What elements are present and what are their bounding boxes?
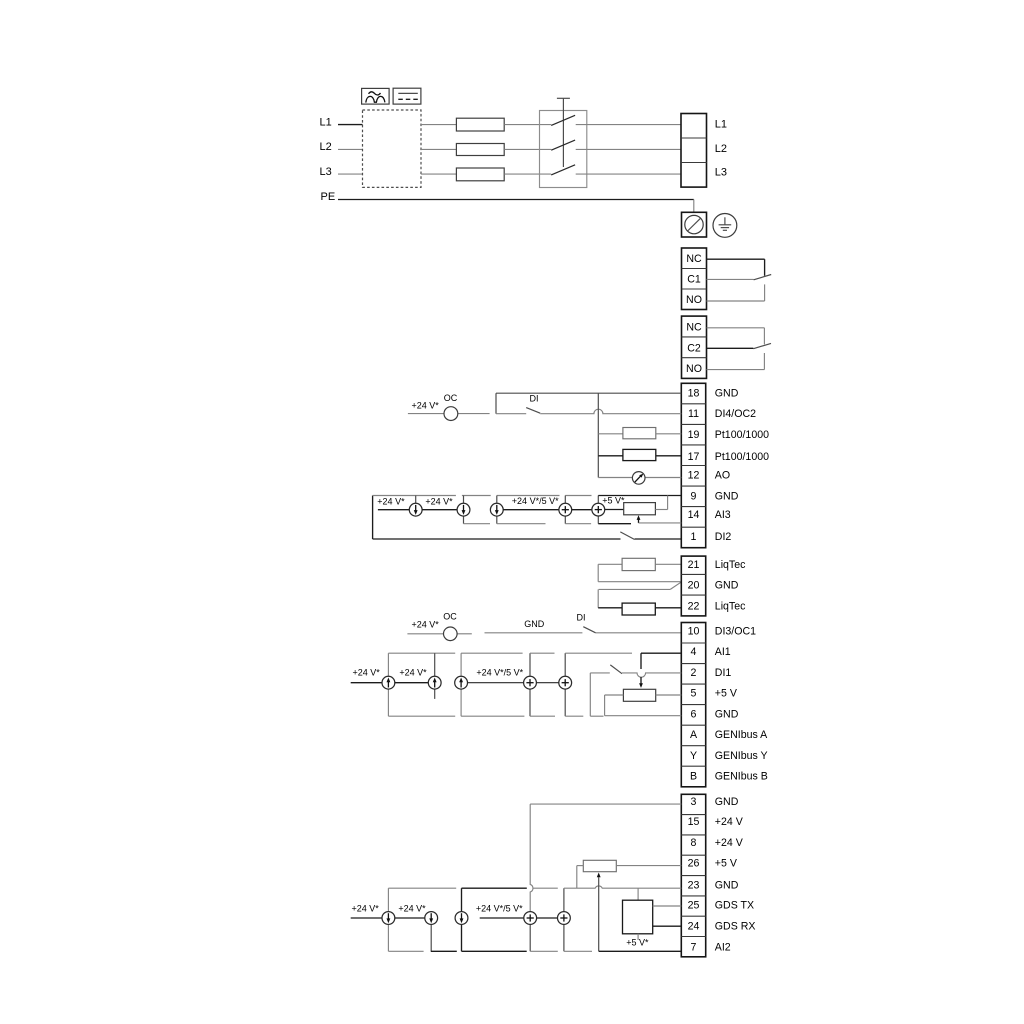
svg-text:+24 V*: +24 V*: [412, 619, 440, 629]
svg-text:L2: L2: [715, 143, 727, 155]
svg-text:GND: GND: [715, 388, 739, 400]
svg-text:8: 8: [691, 837, 697, 849]
svg-text:+5 V*: +5 V*: [602, 495, 625, 505]
svg-text:+5 V: +5 V: [715, 858, 738, 870]
svg-text:GENIbus B: GENIbus B: [715, 771, 768, 783]
svg-text:DI1: DI1: [715, 667, 732, 679]
svg-text:18: 18: [688, 388, 700, 400]
svg-text:15: 15: [688, 816, 700, 828]
svg-text:+24 V: +24 V: [715, 837, 744, 849]
svg-text:22: 22: [688, 600, 700, 612]
svg-text:L2: L2: [320, 141, 332, 153]
svg-text:Pt100/1000: Pt100/1000: [715, 451, 769, 463]
svg-text:C2: C2: [687, 342, 701, 354]
svg-text:+24 V*/5 V*: +24 V*/5 V*: [476, 904, 523, 914]
svg-text:23: 23: [688, 879, 700, 891]
svg-text:3: 3: [691, 796, 697, 808]
svg-text:+5 V*: +5 V*: [626, 938, 649, 948]
svg-text:12: 12: [688, 469, 700, 481]
svg-text:5: 5: [691, 688, 697, 700]
svg-text:1: 1: [691, 531, 697, 543]
svg-text:19: 19: [688, 429, 700, 441]
svg-text:+24 V*: +24 V*: [398, 904, 426, 914]
svg-text:4: 4: [691, 646, 697, 658]
svg-text:AI2: AI2: [715, 941, 731, 953]
svg-text:AO: AO: [715, 469, 730, 481]
svg-text:6: 6: [691, 708, 697, 720]
svg-text:+24 V*: +24 V*: [425, 497, 453, 507]
svg-text:+24 V*: +24 V*: [353, 667, 381, 677]
svg-text:DI2: DI2: [715, 531, 732, 543]
svg-text:L1: L1: [715, 118, 727, 130]
svg-text:L1: L1: [320, 116, 332, 128]
svg-text:GND: GND: [715, 879, 739, 891]
svg-text:21: 21: [688, 559, 700, 571]
svg-text:GND: GND: [715, 796, 739, 808]
svg-text:20: 20: [688, 580, 700, 592]
svg-text:DI4/OC2: DI4/OC2: [715, 408, 756, 420]
svg-text:+24 V*: +24 V*: [377, 497, 405, 507]
svg-text:L3: L3: [715, 167, 727, 179]
svg-text:Y: Y: [690, 750, 697, 762]
svg-text:11: 11: [688, 408, 699, 420]
svg-text:GND: GND: [715, 580, 739, 592]
svg-text:17: 17: [688, 451, 700, 463]
svg-text:OC: OC: [443, 612, 457, 622]
svg-text:GDS TX: GDS TX: [715, 900, 754, 912]
svg-text:NC: NC: [686, 322, 702, 334]
svg-text:DI3/OC1: DI3/OC1: [715, 626, 756, 638]
svg-text:B: B: [690, 771, 697, 783]
svg-text:OC: OC: [444, 393, 458, 403]
svg-text:LiqTec: LiqTec: [715, 600, 746, 612]
svg-text:10: 10: [688, 626, 700, 638]
svg-text:+24 V*: +24 V*: [399, 667, 427, 677]
svg-text:+24 V: +24 V: [715, 816, 744, 828]
svg-text:C1: C1: [687, 274, 701, 286]
svg-text:PE: PE: [321, 191, 336, 203]
svg-text:DI: DI: [530, 394, 539, 404]
svg-text:GND: GND: [524, 619, 545, 629]
svg-text:+5 V: +5 V: [715, 688, 738, 700]
svg-text:L3: L3: [320, 166, 332, 178]
svg-text:NO: NO: [686, 363, 702, 375]
svg-text:+24 V*/5 V*: +24 V*/5 V*: [476, 667, 523, 677]
svg-text:DI: DI: [577, 613, 586, 623]
svg-text:NC: NC: [686, 253, 702, 265]
svg-text:2: 2: [691, 667, 697, 679]
svg-text:25: 25: [688, 900, 700, 912]
svg-text:AI3: AI3: [715, 509, 731, 521]
svg-text:GENIbus Y: GENIbus Y: [715, 750, 768, 762]
svg-text:+24 V*: +24 V*: [352, 904, 380, 914]
svg-text:14: 14: [688, 509, 700, 521]
svg-text:GND: GND: [715, 708, 739, 720]
svg-text:GDS RX: GDS RX: [715, 920, 756, 932]
svg-text:A: A: [690, 729, 698, 741]
svg-text:NO: NO: [686, 294, 702, 306]
svg-text:GENIbus A: GENIbus A: [715, 729, 768, 741]
svg-text:+24 V*: +24 V*: [412, 401, 440, 411]
svg-text:+24 V*/5 V*: +24 V*/5 V*: [512, 496, 559, 506]
svg-text:26: 26: [688, 858, 700, 870]
svg-text:GND: GND: [715, 490, 739, 502]
svg-text:24: 24: [688, 920, 700, 932]
svg-text:7: 7: [691, 941, 697, 953]
svg-text:AI1: AI1: [715, 646, 731, 658]
svg-text:Pt100/1000: Pt100/1000: [715, 429, 769, 441]
svg-text:9: 9: [691, 490, 697, 502]
svg-text:LiqTec: LiqTec: [715, 559, 746, 571]
